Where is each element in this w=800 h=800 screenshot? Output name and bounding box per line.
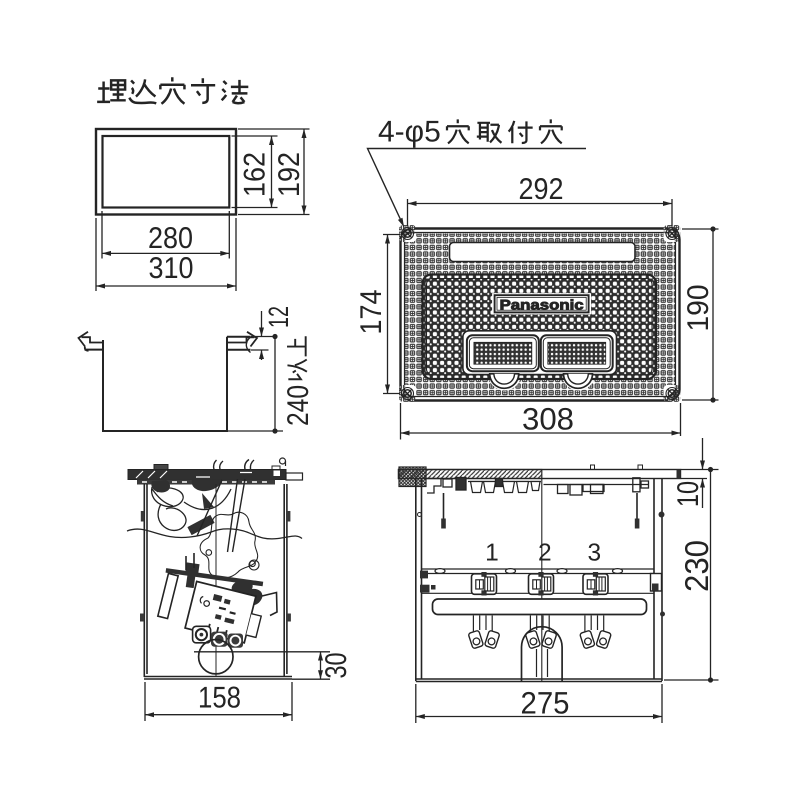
svg-text:158: 158	[198, 682, 241, 715]
svg-text:275: 275	[521, 686, 570, 721]
svg-text:292: 292	[519, 173, 564, 206]
svg-text:190: 190	[682, 285, 715, 332]
svg-text:Panasonic: Panasonic	[500, 296, 584, 312]
svg-text:4-φ5: 4-φ5	[378, 116, 441, 149]
svg-text:280: 280	[148, 222, 193, 255]
svg-text:2: 2	[538, 540, 552, 567]
svg-text:308: 308	[522, 402, 574, 437]
svg-text:192: 192	[273, 152, 306, 197]
svg-text:162: 162	[239, 152, 272, 197]
svg-text:174: 174	[355, 290, 388, 335]
svg-text:230: 230	[678, 540, 715, 592]
svg-text:12: 12	[263, 306, 294, 328]
svg-text:30: 30	[320, 653, 353, 679]
svg-text:10: 10	[672, 481, 705, 507]
svg-text:240: 240	[282, 385, 315, 426]
svg-text:1: 1	[485, 540, 499, 567]
svg-text:310: 310	[149, 252, 194, 285]
svg-text:3: 3	[587, 540, 601, 567]
